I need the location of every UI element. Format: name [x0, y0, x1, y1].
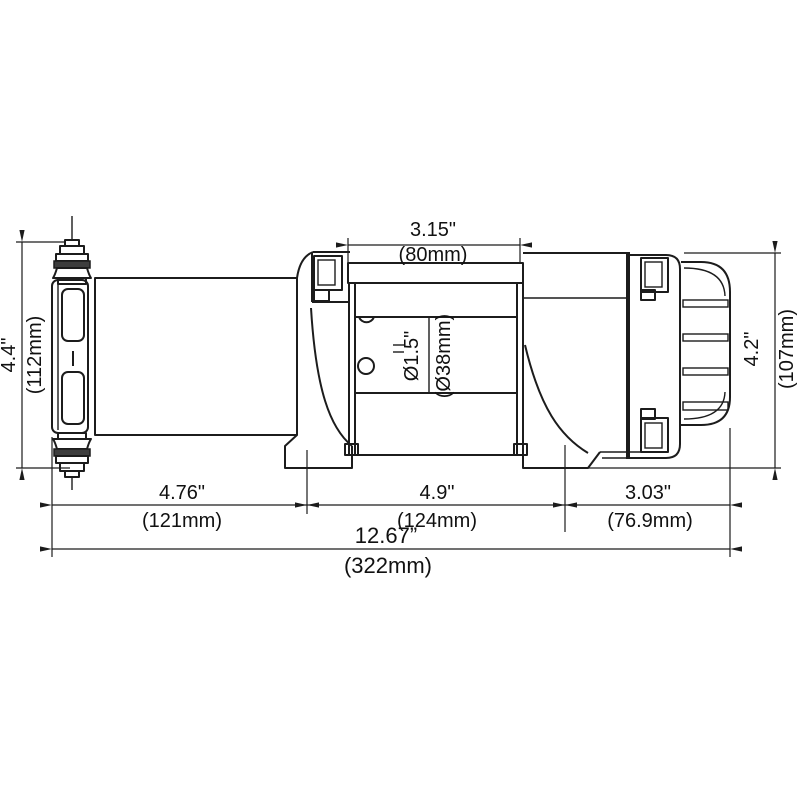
dim-gearbox-length-mm: (121mm) — [142, 510, 222, 532]
dim-overall-length-mm: (322mm) — [344, 553, 432, 578]
dim-motor-height-inches: 4.2" — [741, 332, 763, 367]
dim-drum-diameter-mm: (Ø38mm) — [433, 314, 455, 398]
mount-plate — [52, 280, 88, 433]
dim-motor-height-mm: (107mm) — [776, 309, 798, 389]
right-gusset-curve — [525, 345, 588, 453]
motor-rib — [683, 368, 728, 375]
mount-bolt-top — [53, 216, 91, 284]
dim-motor-length-mm: (76.9mm) — [607, 510, 693, 532]
dim-drum-width-mm: (80mm) — [399, 244, 468, 266]
right-foot — [523, 452, 600, 468]
winch-dimension-diagram: 3.15" (80mm) 4.4" (112mm) Ø1.5" (Ø38mm) … — [0, 0, 800, 800]
left-gusset-curve — [311, 308, 352, 446]
dim-drum-diameter-inches: Ø1.5" — [401, 331, 423, 381]
right-support-bracket — [523, 253, 668, 468]
dim-drum-width-inches: 3.15" — [410, 219, 456, 241]
dim-motor-length-inches: 3.03" — [625, 482, 671, 504]
dim-drum-diameter: Ø1.5" (Ø38mm) — [401, 314, 455, 398]
dim-drum-section-length-inches: 4.9" — [420, 482, 455, 504]
left-foot — [285, 435, 352, 468]
motor-adapter-plate — [630, 255, 680, 458]
tie-bar — [348, 263, 523, 283]
dim-drum-width: 3.15" (80mm) — [348, 219, 520, 266]
dim-gearbox-length-inches: 4.76" — [159, 482, 205, 504]
mount-bolt-bottom — [53, 433, 91, 490]
plate-slot-lower — [62, 372, 84, 424]
left-support-bracket — [285, 252, 352, 468]
dim-overall-length-inches: 12.67” — [355, 523, 417, 548]
dim-plate-height-mm: (112mm) — [24, 316, 46, 395]
motor-rib — [683, 334, 728, 341]
washer-band-top — [54, 261, 90, 268]
motor-rib — [683, 300, 728, 307]
plate-slot-upper — [62, 289, 84, 341]
dim-plate-height-inches: 4.4" — [0, 338, 20, 373]
gearbox-housing — [95, 252, 313, 435]
technical-drawing-page: 3.15" (80mm) 4.4" (112mm) Ø1.5" (Ø38mm) … — [0, 0, 800, 800]
dim-motor-height: 4.2" (107mm) — [588, 253, 798, 468]
motor-end-cap — [681, 262, 730, 425]
flange-pad-right — [514, 444, 527, 455]
drum-anchor-hole — [358, 358, 374, 374]
washer-band-bottom — [54, 449, 90, 456]
